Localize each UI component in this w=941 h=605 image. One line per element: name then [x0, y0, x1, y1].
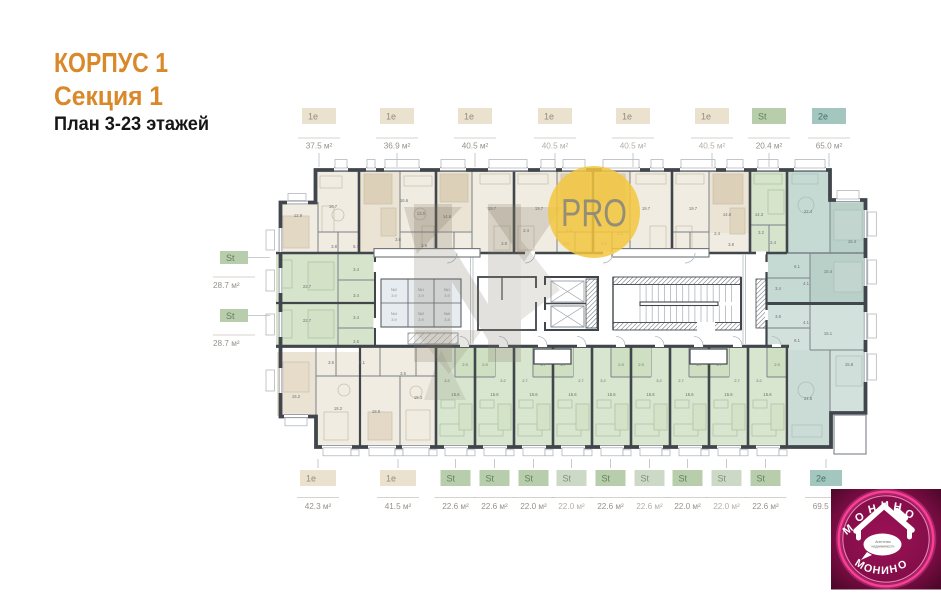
svg-text:недвижимости: недвижимости: [872, 545, 895, 549]
svg-text:15.2: 15.2: [292, 394, 301, 399]
svg-text:3.1: 3.1: [359, 360, 365, 365]
svg-text:1e: 1e: [701, 112, 711, 122]
svg-text:65.0 м²: 65.0 м²: [816, 142, 843, 151]
svg-text:15.1: 15.1: [824, 331, 833, 336]
svg-text:1e: 1e: [622, 112, 632, 122]
svg-text:St: St: [226, 311, 235, 321]
svg-text:22.6 м²: 22.6 м²: [752, 502, 779, 511]
svg-text:St: St: [447, 474, 456, 484]
svg-text:3.4: 3.4: [775, 286, 781, 291]
svg-text:St: St: [641, 474, 650, 484]
svg-text:2e: 2e: [818, 112, 828, 122]
svg-text:2.7: 2.7: [678, 378, 684, 383]
svg-text:22.7: 22.7: [303, 284, 312, 289]
svg-text:24.8: 24.8: [804, 396, 813, 401]
svg-text:St: St: [718, 474, 727, 484]
svg-text:15.6: 15.6: [607, 392, 616, 397]
svg-text:Агентство: Агентство: [875, 540, 891, 544]
svg-text:St: St: [563, 474, 572, 484]
svg-text:2e: 2e: [816, 474, 826, 484]
svg-text:St: St: [757, 474, 766, 484]
svg-text:15.4: 15.4: [824, 269, 833, 274]
svg-text:3.2: 3.2: [600, 378, 606, 383]
svg-text:15.3: 15.3: [414, 395, 423, 400]
svg-text:40.5 м²: 40.5 м²: [620, 142, 647, 151]
svg-text:3.7: 3.7: [716, 362, 722, 367]
svg-text:3.2: 3.2: [756, 378, 762, 383]
svg-text:3.5: 3.5: [400, 371, 406, 376]
svg-text:3.7: 3.7: [560, 362, 566, 367]
svg-text:PRO: PRO: [561, 192, 627, 235]
svg-text:№2: №2: [391, 287, 398, 292]
svg-text:22.7: 22.7: [303, 318, 312, 323]
svg-text:Секция 1: Секция 1: [54, 81, 163, 111]
svg-text:St: St: [486, 474, 495, 484]
svg-text:План 3-23 этажей: План 3-23 этажей: [54, 113, 209, 135]
svg-text:14.3: 14.3: [755, 212, 764, 217]
svg-text:St: St: [602, 474, 611, 484]
svg-text:St: St: [525, 474, 534, 484]
svg-text:2.9: 2.9: [638, 362, 644, 367]
svg-text:22.0 м²: 22.0 м²: [520, 502, 547, 511]
svg-text:15.6: 15.6: [529, 392, 538, 397]
svg-text:22.6 м²: 22.6 м²: [597, 502, 624, 511]
svg-text:15.6: 15.6: [724, 392, 733, 397]
svg-text:20.4 м²: 20.4 м²: [756, 142, 783, 151]
svg-text:St: St: [679, 474, 688, 484]
svg-text:3.4: 3.4: [353, 315, 359, 320]
svg-text:22.4: 22.4: [804, 209, 813, 214]
svg-text:37.5 м²: 37.5 м²: [306, 142, 333, 151]
svg-text:40.5 м²: 40.5 м²: [699, 142, 726, 151]
svg-text:3.6: 3.6: [775, 314, 781, 319]
svg-text:40.5 м²: 40.5 м²: [542, 142, 569, 151]
svg-text:2.9: 2.9: [462, 362, 468, 367]
svg-text:2.7: 2.7: [522, 378, 528, 383]
svg-text:2.6: 2.6: [353, 339, 359, 344]
svg-text:2.9: 2.9: [482, 362, 488, 367]
svg-text:3.7: 3.7: [540, 362, 546, 367]
svg-text:И: И: [881, 565, 889, 577]
svg-text:3.4: 3.4: [353, 293, 359, 298]
svg-text:КОРПУС 1: КОРПУС 1: [54, 47, 168, 78]
svg-text:15.6: 15.6: [490, 392, 499, 397]
svg-text:28.7 м²: 28.7 м²: [213, 339, 240, 348]
svg-text:6.1: 6.1: [794, 338, 800, 343]
svg-text:3.4: 3.4: [353, 267, 359, 272]
svg-text:3.2: 3.2: [758, 230, 764, 235]
svg-text:16.6: 16.6: [400, 198, 409, 203]
svg-text:22.6 м²: 22.6 м²: [481, 502, 508, 511]
svg-text:3.7: 3.7: [696, 362, 702, 367]
svg-text:3.9: 3.9: [391, 317, 397, 322]
svg-text:2.9: 2.9: [774, 362, 780, 367]
svg-text:15.4: 15.4: [848, 239, 857, 244]
svg-text:22.0 м²: 22.0 м²: [558, 502, 585, 511]
svg-text:18.9: 18.9: [372, 409, 381, 414]
svg-text:5.1: 5.1: [353, 244, 359, 249]
svg-text:4.1: 4.1: [803, 320, 809, 325]
svg-text:3.2: 3.2: [656, 378, 662, 383]
svg-text:22.0 м²: 22.0 м²: [713, 502, 740, 511]
svg-text:№4: №4: [391, 311, 398, 316]
svg-text:15.6: 15.6: [685, 392, 694, 397]
svg-text:2.9: 2.9: [618, 362, 624, 367]
svg-text:3.9: 3.9: [391, 293, 397, 298]
svg-text:St: St: [226, 253, 235, 263]
svg-text:40.5 м²: 40.5 м²: [462, 142, 489, 151]
svg-text:36.9 м²: 36.9 м²: [384, 142, 411, 151]
svg-text:15.6: 15.6: [763, 392, 772, 397]
svg-text:22.6 м²: 22.6 м²: [636, 502, 663, 511]
svg-text:1e: 1e: [308, 112, 318, 122]
svg-text:22.0 м²: 22.0 м²: [674, 502, 701, 511]
svg-text:28.7 м²: 28.7 м²: [213, 281, 240, 290]
svg-text:15.6: 15.6: [568, 392, 577, 397]
svg-text:3.2: 3.2: [500, 378, 506, 383]
svg-text:2.4: 2.4: [770, 240, 776, 245]
svg-text:1e: 1e: [386, 474, 396, 484]
svg-text:12.9: 12.9: [294, 213, 303, 218]
svg-text:16.7: 16.7: [329, 204, 338, 209]
svg-text:3.6: 3.6: [328, 360, 334, 365]
svg-text:14.6: 14.6: [723, 212, 732, 217]
svg-text:19.7: 19.7: [689, 206, 698, 211]
svg-text:18.2: 18.2: [334, 406, 343, 411]
svg-text:19.7: 19.7: [642, 206, 651, 211]
svg-text:2.7: 2.7: [734, 378, 740, 383]
svg-text:1e: 1e: [544, 112, 554, 122]
svg-text:2.4: 2.4: [714, 231, 720, 236]
svg-text:15.8: 15.8: [845, 362, 854, 367]
svg-text:6.1: 6.1: [794, 264, 800, 269]
svg-text:42.3 м²: 42.3 м²: [305, 502, 332, 511]
svg-text:3.8: 3.8: [395, 237, 401, 242]
svg-text:3.8: 3.8: [728, 242, 734, 247]
svg-text:3.8: 3.8: [331, 244, 337, 249]
svg-text:15.6: 15.6: [646, 392, 655, 397]
svg-text:22.6 м²: 22.6 м²: [442, 502, 469, 511]
svg-text:St: St: [758, 112, 767, 122]
svg-text:2.7: 2.7: [578, 378, 584, 383]
svg-text:4.1: 4.1: [803, 281, 809, 286]
svg-text:41.5 м²: 41.5 м²: [385, 502, 412, 511]
svg-text:1e: 1e: [464, 112, 474, 122]
svg-text:1e: 1e: [386, 112, 396, 122]
svg-text:1e: 1e: [306, 474, 316, 484]
